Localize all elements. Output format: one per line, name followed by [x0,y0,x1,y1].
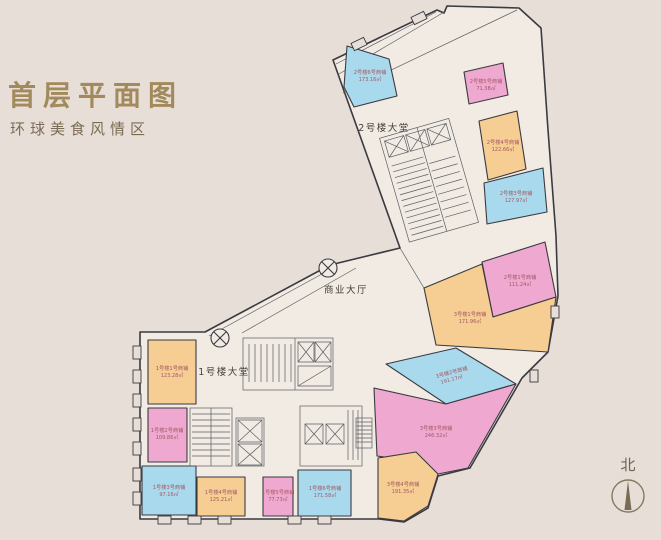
svg-text:173.16㎡: 173.16㎡ [359,76,382,83]
svg-text:127.97㎡: 127.97㎡ [505,197,528,204]
svg-text:1号楼2号商铺: 1号楼2号商铺 [151,426,184,434]
svg-text:123.28㎡: 123.28㎡ [161,372,184,379]
room-o1: 1号楼1号商铺 123.28㎡ [148,340,196,404]
svg-text:2号楼1号商铺: 2号楼1号商铺 [504,273,537,281]
svg-text:125.21㎡: 125.21㎡ [210,496,233,503]
svg-text:1号楼1号商铺: 1号楼1号商铺 [156,364,189,372]
svg-text:191.35㎡: 191.35㎡ [392,488,415,495]
svg-text:171.58㎡: 171.58㎡ [314,492,337,499]
label-hall: 商业大厅 [324,284,368,296]
svg-text:109.86㎡: 109.86㎡ [156,434,179,441]
svg-text:3号楼4号商铺: 3号楼4号商铺 [387,480,420,488]
column-symbol-1 [211,329,229,347]
svg-text:1号楼4号商铺: 1号楼4号商铺 [205,488,238,496]
room-u3: 2号楼4号商铺 122.66㎡ [479,111,526,180]
north-needle-icon [625,481,632,511]
svg-text:1号楼6号商铺: 1号楼6号商铺 [309,484,342,492]
svg-text:3号楼3号商铺: 3号楼3号商铺 [420,424,453,432]
svg-text:77.73㎡: 77.73㎡ [268,496,287,503]
north-indicator: 北 [612,456,644,512]
room-b3: 1号楼6号商铺 171.58㎡ [298,470,351,516]
svg-text:122.66㎡: 122.66㎡ [492,146,515,153]
svg-text:71.38㎡: 71.38㎡ [476,85,495,92]
north-label: 北 [620,456,635,474]
room-o2: 1号楼4号商铺 125.21㎡ [197,477,245,516]
label-lobby1: 1号楼大堂 [198,366,250,378]
room-p1: 1号楼2号商铺 109.86㎡ [148,408,187,462]
svg-text:171.96㎡: 171.96㎡ [459,318,482,325]
svg-text:97.16㎡: 97.16㎡ [159,491,178,498]
room-p2: 1号楼5号商铺 77.73㎡ [262,477,295,516]
room-b2: 1号楼3号商铺 97.16㎡ [142,466,196,515]
svg-text:2号楼6号商铺: 2号楼6号商铺 [354,68,387,76]
svg-text:246.32㎡: 246.32㎡ [425,432,448,439]
svg-text:111.24㎡: 111.24㎡ [509,281,532,288]
svg-text:2号楼3号商铺: 2号楼3号商铺 [500,189,533,197]
svg-text:3号楼1号商铺: 3号楼1号商铺 [454,310,487,318]
svg-text:1号楼3号商铺: 1号楼3号商铺 [153,483,186,491]
svg-text:2号楼5号商铺: 2号楼5号商铺 [470,77,503,85]
floor-plan: 2号楼6号商铺 173.16㎡ 2号楼5号商铺 71.38㎡ 2号楼4号商铺 1… [0,0,661,540]
label-lobby2: 2号楼大堂 [358,122,410,134]
svg-text:2号楼4号商铺: 2号楼4号商铺 [487,138,520,146]
column-symbol-2 [319,259,337,277]
svg-text:1号楼5号商铺: 1号楼5号商铺 [262,488,295,496]
